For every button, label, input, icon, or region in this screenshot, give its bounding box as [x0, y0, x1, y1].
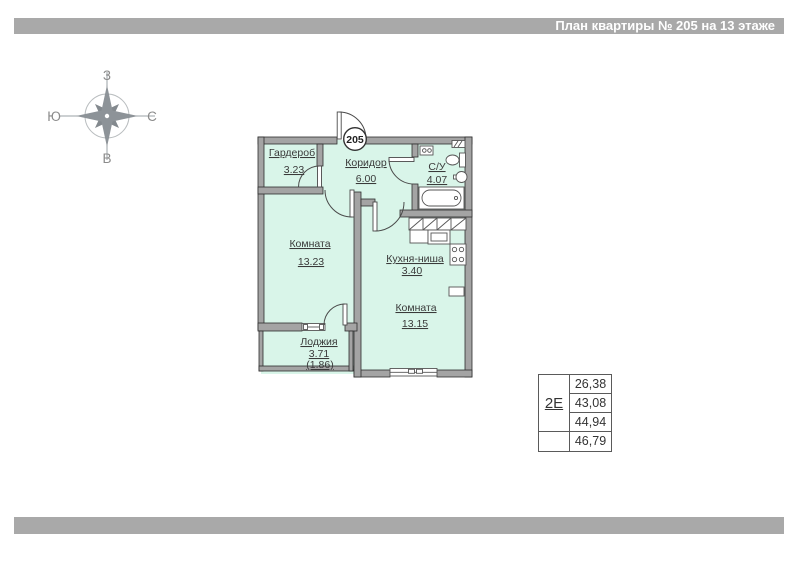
wall-segment	[258, 187, 323, 194]
room-area-corridor: 6.00	[356, 173, 377, 185]
area-table-values-column: 26,38 43,08 44,94 46,79	[570, 375, 611, 451]
room-label-corridor: Коридор	[345, 157, 387, 169]
kitchen-counter-icon	[409, 218, 466, 230]
area-table-empty-cell	[539, 432, 569, 451]
compass-south-label: Ю	[47, 109, 61, 124]
wall-segment	[258, 137, 264, 330]
room-area-kitchen: 3.40	[402, 265, 423, 277]
area-value-living: 26,38	[570, 375, 611, 394]
wall-segment	[412, 144, 418, 157]
area-table-type-cell: 2Е	[539, 375, 569, 432]
area-value-with-coeff: 44,94	[570, 413, 611, 432]
wall-segment	[349, 331, 353, 371]
room-area-wardrobe: 3.23	[284, 164, 305, 176]
wall-segment	[437, 370, 472, 377]
area-value-total: 46,79	[570, 432, 611, 451]
area-table-type-column: 2Е	[539, 375, 570, 451]
bathtub-icon	[419, 187, 464, 209]
kitchen-cabinet-icon	[410, 230, 428, 243]
room-area-room2: 13.15	[402, 318, 428, 330]
area-summary-table: 2Е 26,38 43,08 44,94 46,79	[538, 374, 612, 452]
compass-north-label: С	[147, 109, 157, 124]
room-label-room2: Комната	[395, 302, 436, 314]
washing-machine-icon	[420, 146, 433, 155]
room-label-bathroom: С/У	[428, 161, 446, 173]
room-label-room1: Комната	[289, 238, 330, 250]
wall-segment	[412, 184, 418, 211]
kitchen-sink-icon	[428, 230, 450, 244]
compass-west-label: З	[103, 68, 111, 83]
area-value-apartment: 43,08	[570, 394, 611, 413]
window-room2	[390, 369, 437, 377]
room-area-room1: 13.23	[298, 256, 324, 268]
wall-segment	[259, 331, 263, 371]
counter-end-icon	[449, 287, 464, 296]
wall-segment	[258, 323, 302, 331]
stove-icon	[450, 244, 466, 265]
room-label-wardrobe: Гардероб	[269, 147, 315, 159]
vent-shaft-icon	[452, 141, 465, 148]
wall-segment	[400, 210, 472, 217]
wall-segment	[354, 192, 361, 377]
compass-east-label: В	[102, 151, 111, 166]
room-area-bathroom: 4.07	[427, 174, 448, 186]
wall-segment	[258, 137, 337, 144]
compass-rose-icon: З Ю С В	[47, 68, 157, 166]
window-loggia-unit	[302, 324, 325, 331]
apartment-type-label: 2Е	[545, 395, 563, 412]
footer-bar	[14, 517, 784, 534]
apartment-number-badge: 205	[344, 128, 367, 151]
floor-plan-canvas: З Ю С В	[0, 0, 800, 567]
wall-segment	[317, 144, 323, 166]
room-label-loggia: Лоджия	[300, 336, 337, 348]
room-label-kitchen: Кухня-ниша	[386, 253, 444, 265]
room-area-loggia-coeff: (1.86)	[306, 359, 333, 371]
apartment-number: 205	[346, 134, 364, 146]
